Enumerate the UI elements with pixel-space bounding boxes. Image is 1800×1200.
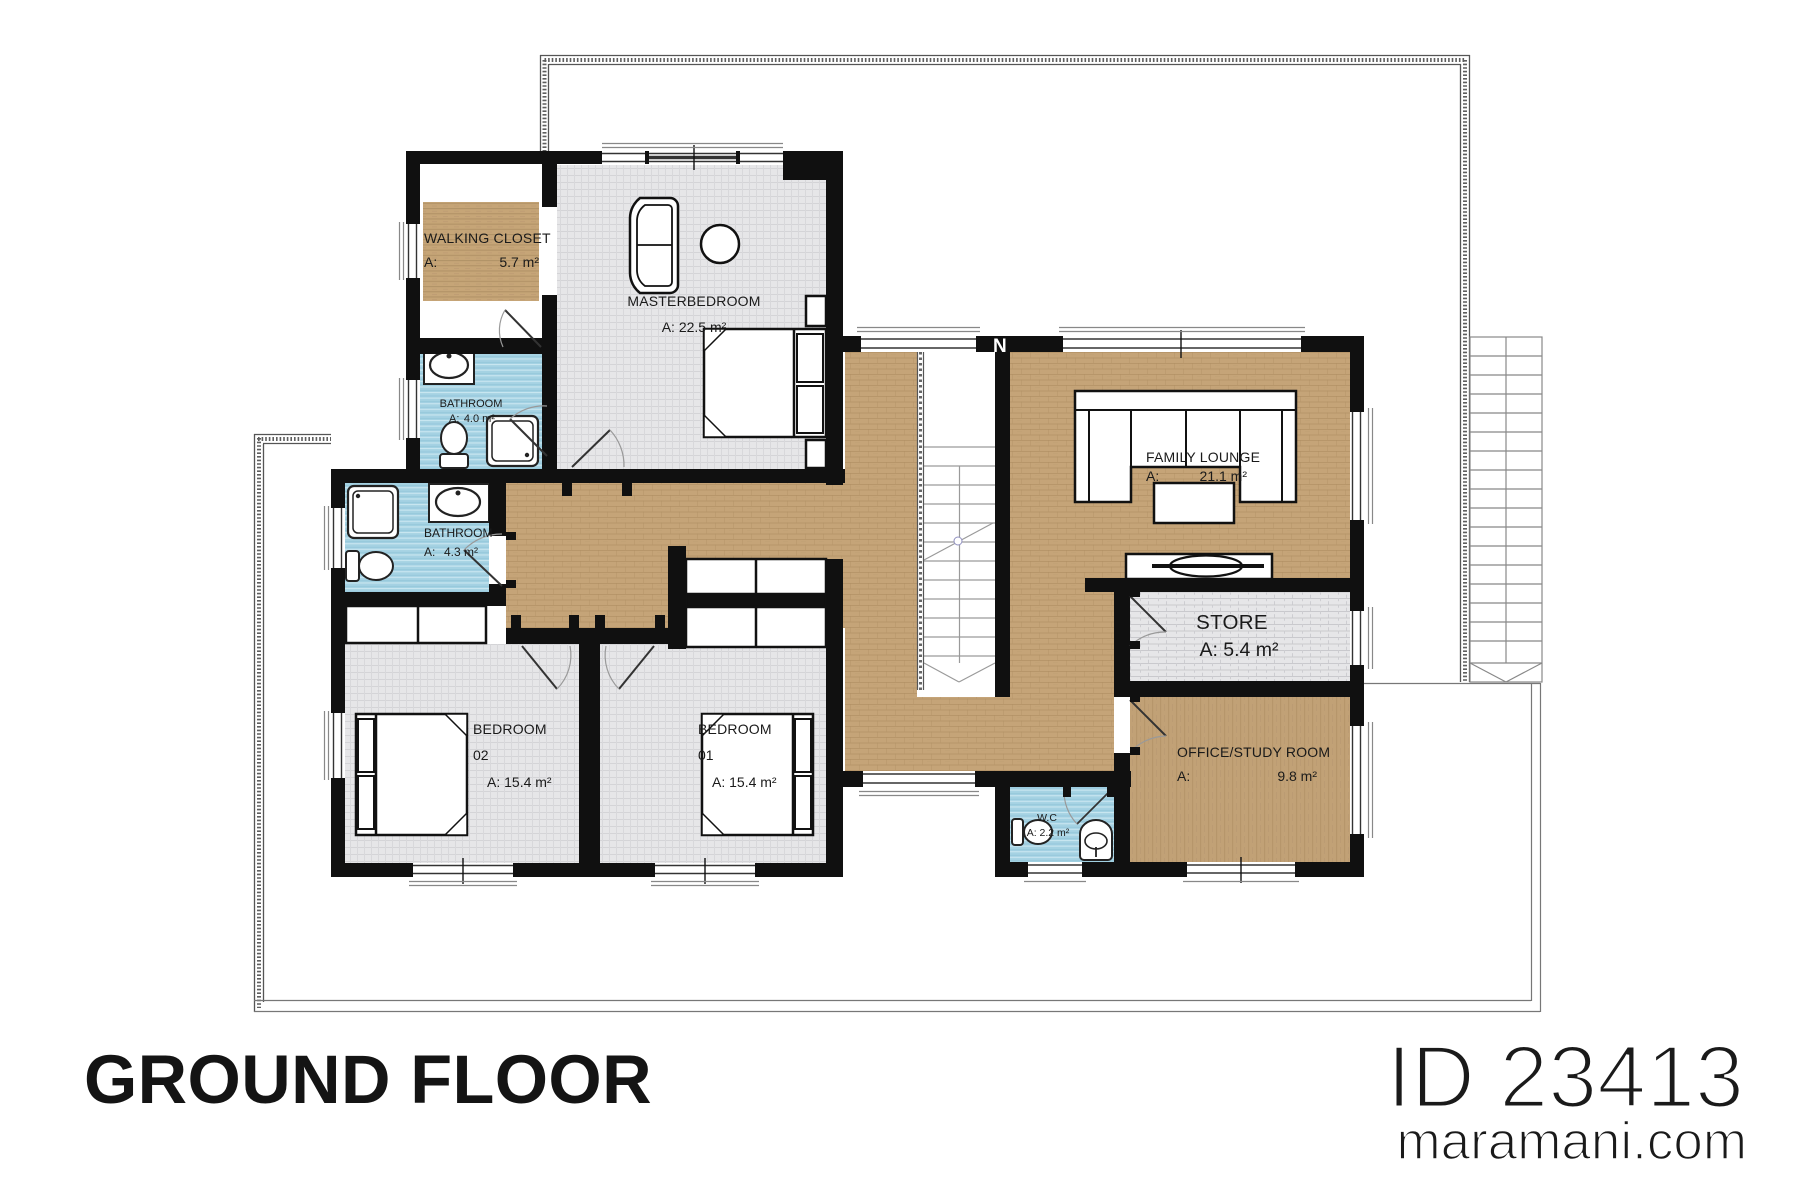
- svg-text:A:: A:: [424, 545, 435, 559]
- svg-text:A:: A:: [1177, 768, 1190, 784]
- svg-text:FAMILY LOUNGE: FAMILY LOUNGE: [1146, 449, 1260, 465]
- svg-text:N: N: [993, 336, 1007, 357]
- svg-text:GROUND FLOOR: GROUND FLOOR: [84, 1041, 652, 1118]
- svg-text:W.C: W.C: [1037, 812, 1057, 824]
- svg-text:4.0 m²: 4.0 m²: [464, 413, 496, 425]
- svg-text:BEDROOM: BEDROOM: [473, 721, 547, 737]
- svg-text:A:: A:: [449, 413, 459, 425]
- svg-text:01: 01: [698, 747, 714, 763]
- svg-text:A: 15.4 m²: A: 15.4 m²: [487, 774, 552, 790]
- svg-text:A: 15.4 m²: A: 15.4 m²: [712, 774, 777, 790]
- svg-text:9.8 m²: 9.8 m²: [1277, 768, 1317, 784]
- svg-text:A: 22.5 m²: A: 22.5 m²: [662, 319, 727, 335]
- svg-text:OFFICE/STUDY ROOM: OFFICE/STUDY ROOM: [1177, 744, 1330, 760]
- svg-text:A: 5.4 m²: A: 5.4 m²: [1199, 639, 1279, 661]
- svg-text:4.3 m²: 4.3 m²: [444, 545, 478, 559]
- svg-text:MASTERBEDROOM: MASTERBEDROOM: [627, 293, 760, 309]
- svg-text:A:: A:: [1146, 468, 1159, 484]
- svg-text:maramani.com: maramani.com: [1397, 1112, 1747, 1171]
- svg-text:BATHROOM: BATHROOM: [424, 526, 492, 540]
- svg-text:STORE: STORE: [1196, 611, 1268, 634]
- svg-text:02: 02: [473, 747, 489, 763]
- svg-text:BATHROOM: BATHROOM: [440, 398, 503, 410]
- svg-text:BEDROOM: BEDROOM: [698, 721, 772, 737]
- svg-text:21.1 m²: 21.1 m²: [1200, 468, 1248, 484]
- svg-text:A:: A:: [424, 254, 437, 270]
- svg-text:5.7 m²: 5.7 m²: [499, 254, 539, 270]
- svg-text:WALKING CLOSET: WALKING CLOSET: [424, 230, 551, 246]
- svg-text:A: 2.2 m²: A: 2.2 m²: [1027, 827, 1070, 839]
